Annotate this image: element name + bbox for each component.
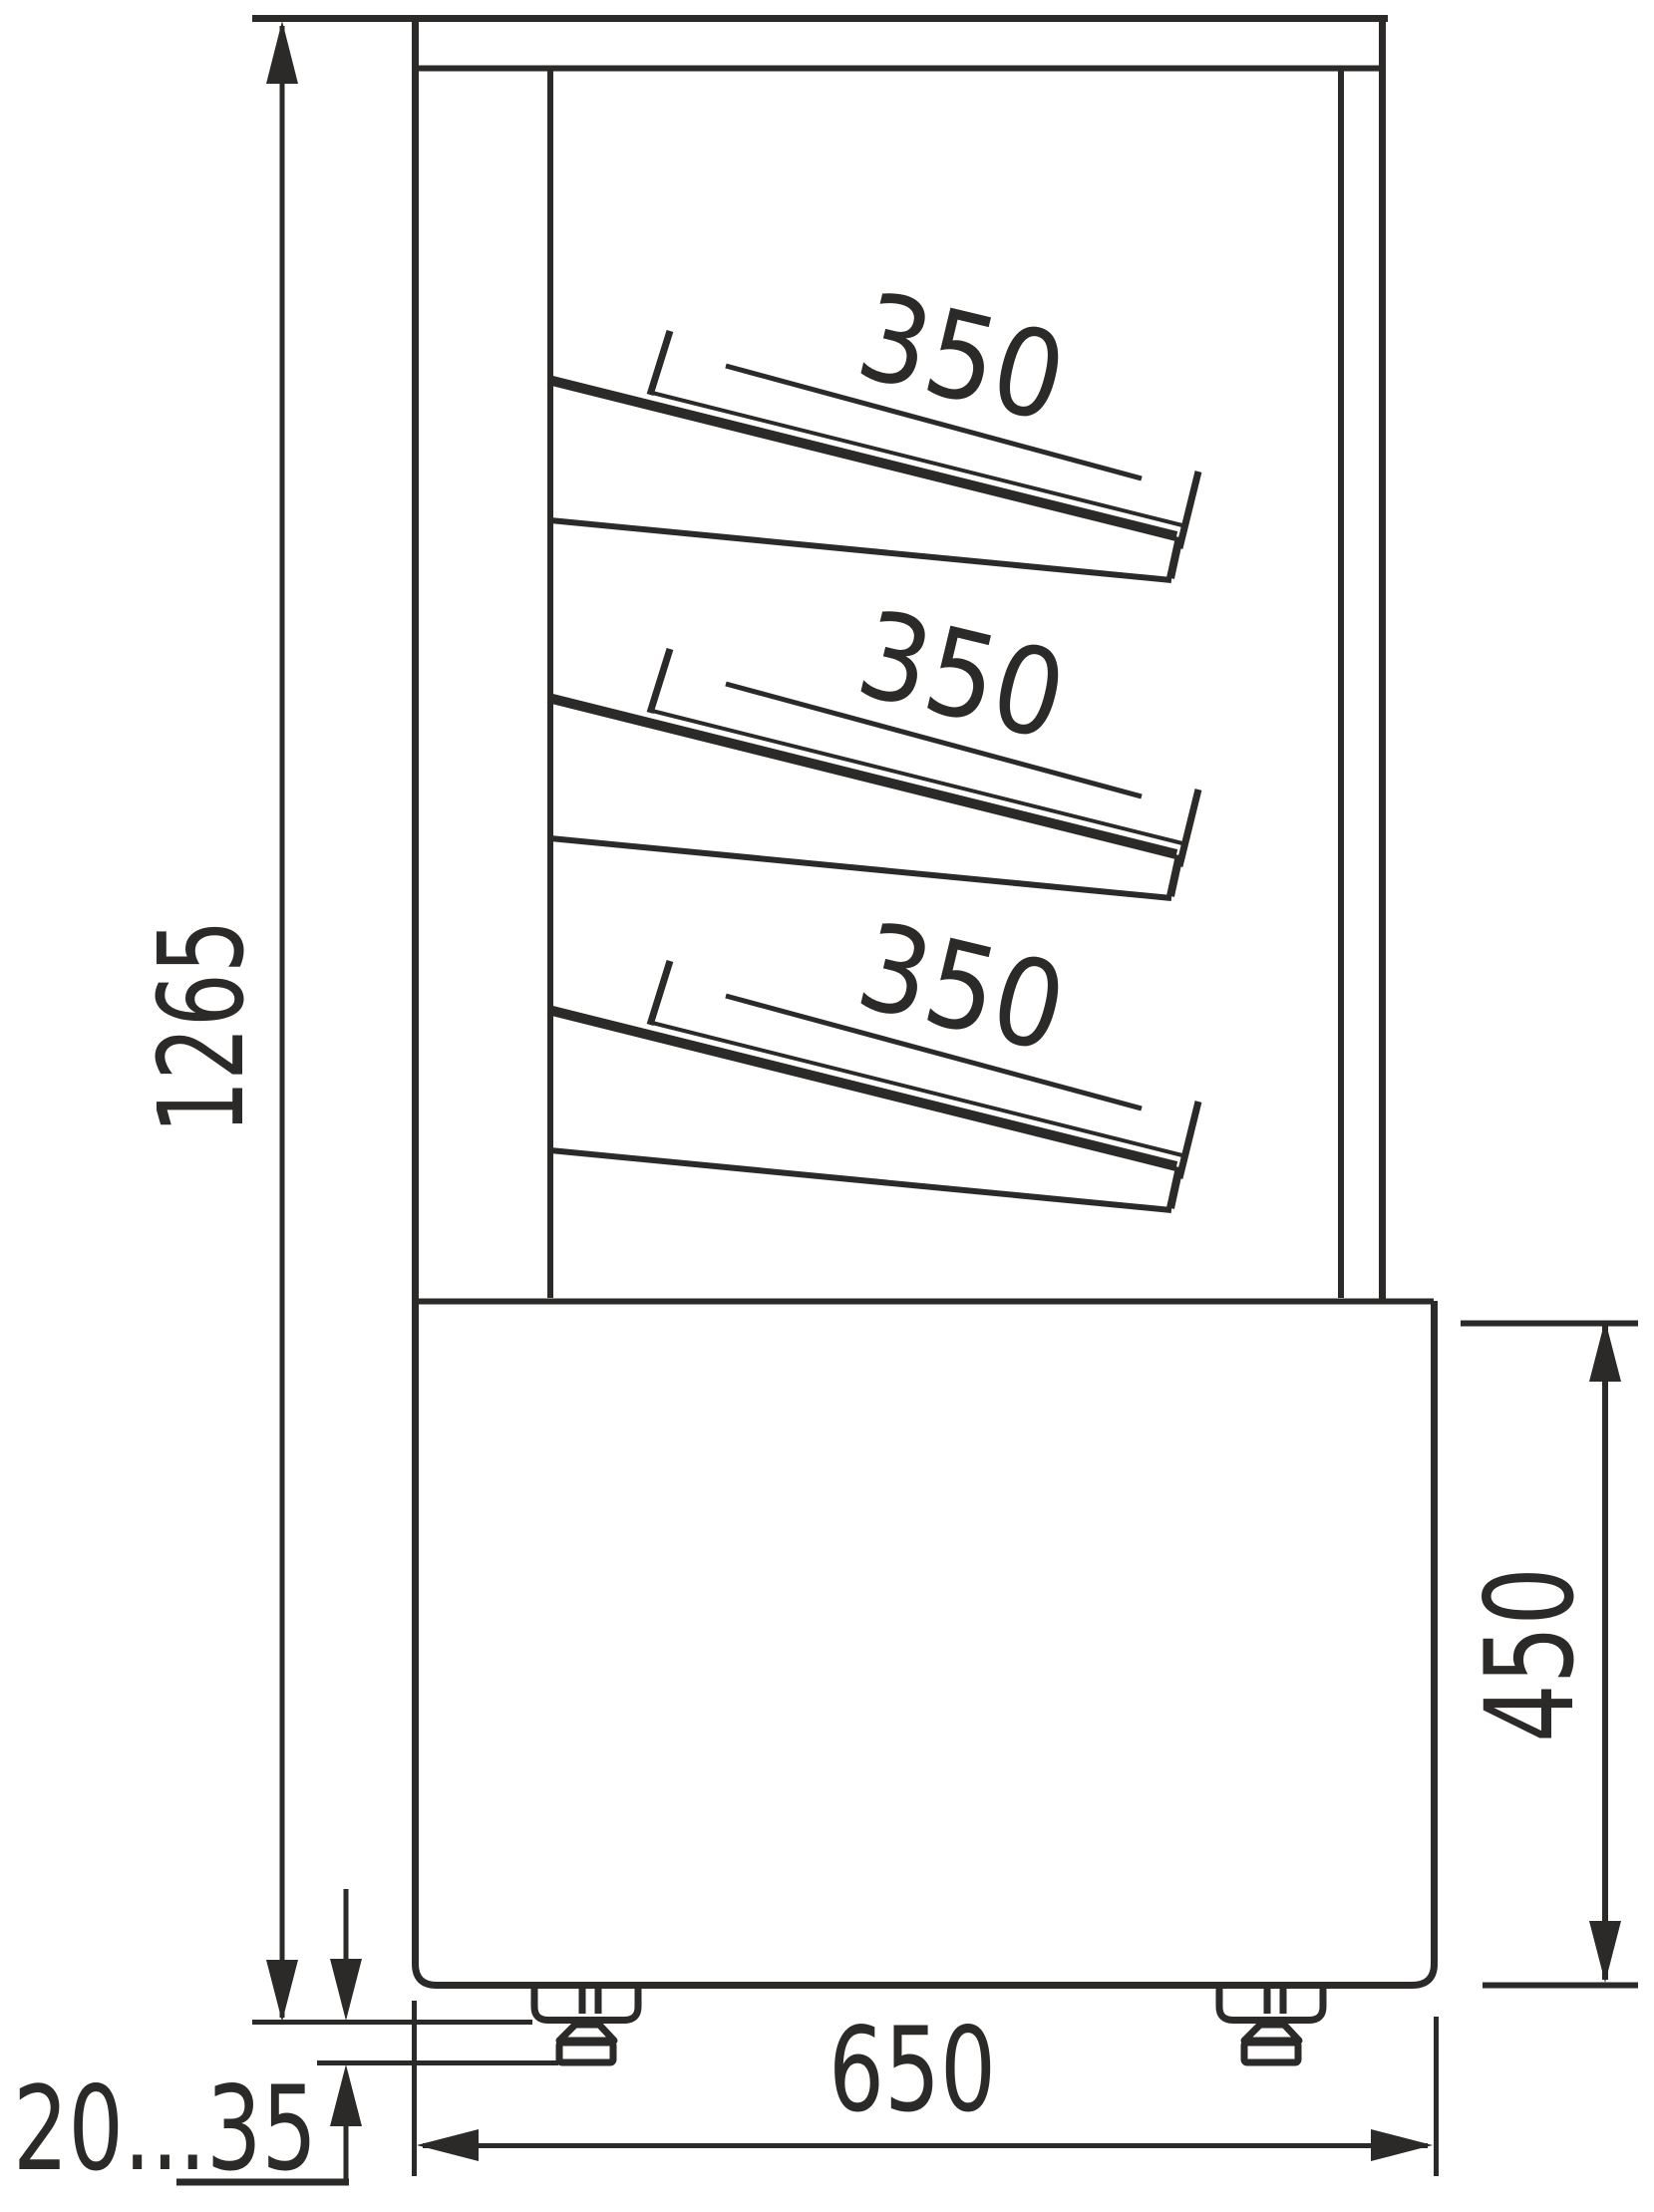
dim-tick-right: [1179, 472, 1198, 548]
dim-label-shelf-1-depth: 350: [845, 267, 1078, 450]
foot-cone: [559, 2025, 614, 2041]
shelf-1: [548, 380, 1182, 580]
leg-right: [1219, 1988, 1323, 2062]
leg-left: [534, 1988, 638, 2062]
technical-drawing: 350 350 350 1265 450: [0, 0, 1654, 2212]
leg-threaded-rod: [582, 1988, 598, 2014]
arrow-down-icon: [1589, 1921, 1621, 1983]
foot-cone: [1244, 2025, 1299, 2041]
dim-label-base-height: 450: [1460, 1567, 1601, 1742]
dim-label-shelf-3-depth: 350: [845, 897, 1078, 1080]
dim-tick-left: [650, 331, 670, 395]
arrow-up-icon: [330, 2064, 362, 2126]
dim-tick-left: [650, 961, 670, 1025]
shelf-2-support-line: [550, 838, 1171, 898]
leg-bracket: [1219, 1988, 1323, 2021]
dimension-shelf-1-depth: 350: [650, 267, 1198, 548]
dimension-overall-height: 1265: [133, 21, 298, 2022]
arrow-up-icon: [266, 21, 298, 84]
foot-pad: [559, 2043, 613, 2062]
shelf-2: [548, 698, 1182, 898]
dim-tick-right: [1179, 790, 1198, 866]
dim-tick-right: [1179, 1102, 1198, 1178]
dim-label-shelf-2-depth: 350: [845, 585, 1078, 768]
arrow-down-icon: [266, 1960, 298, 2022]
leg-bracket: [534, 1988, 638, 2021]
foot-pad: [1244, 2043, 1298, 2062]
arrow-right-icon: [1371, 2129, 1433, 2161]
shelf-3: [548, 1010, 1182, 1210]
dimension-shelf-3-depth: 350: [650, 897, 1198, 1178]
arrow-down-icon: [330, 1959, 362, 2021]
dim-tick-left: [650, 649, 670, 713]
dim-label-overall-height: 1265: [133, 920, 270, 1134]
leg-threaded-rod: [1267, 1988, 1283, 2014]
drawing-page: 350 350 350 1265 450: [0, 0, 1654, 2212]
dim-label-foot-adjustment: 20...35: [13, 2060, 317, 2197]
dim-label-base-depth: 650: [828, 2002, 996, 2138]
arrow-left-icon: [417, 2129, 479, 2161]
dimension-base-height: 450: [1460, 1320, 1638, 1986]
cabinet-outline: [252, 18, 1435, 1986]
shelf-3-support-line: [550, 1150, 1171, 1210]
shelf-1-support-line: [550, 520, 1171, 580]
dimension-shelf-2-depth: 350: [650, 585, 1198, 866]
arrow-up-icon: [1589, 1320, 1621, 1382]
